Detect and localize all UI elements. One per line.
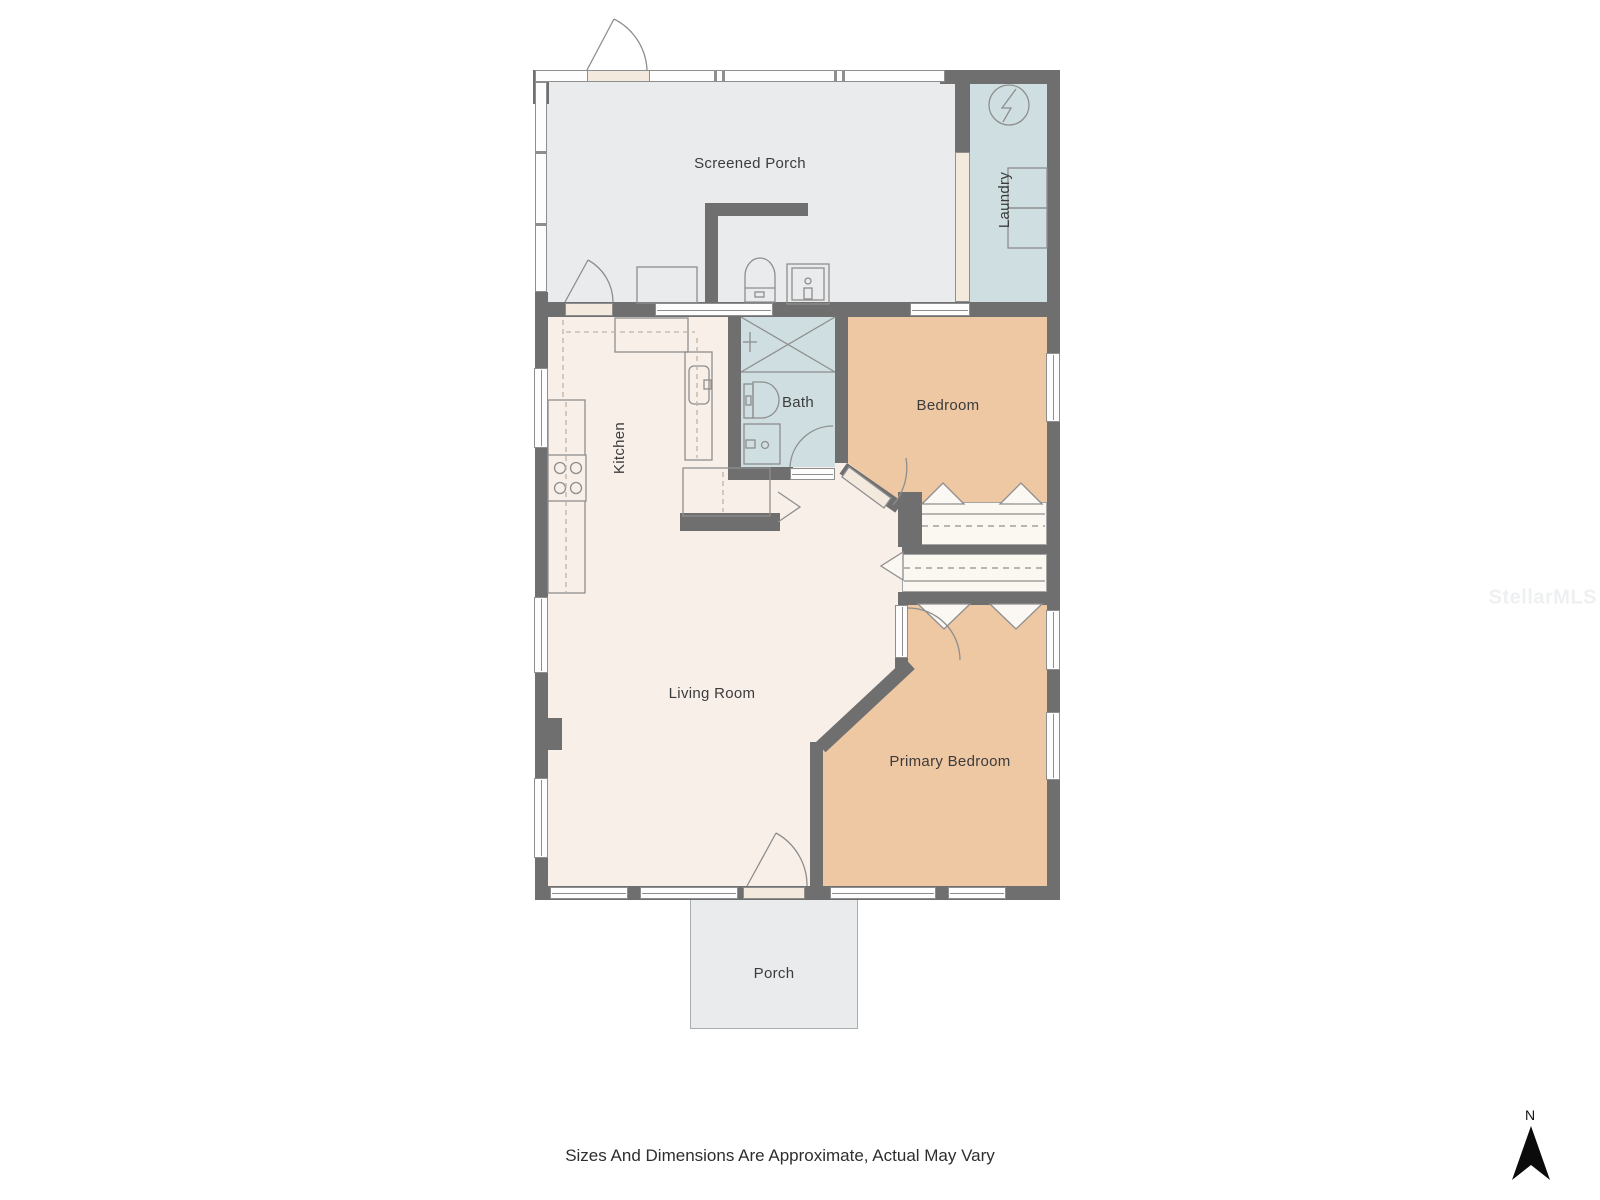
bath-door-gap: [790, 468, 835, 480]
primary-closet: [902, 554, 1047, 592]
primary-window-bottom-2: [948, 887, 1006, 899]
kitchen-window: [534, 368, 548, 448]
primary-window-bottom-1: [830, 887, 936, 899]
living-window-bottom-1: [550, 887, 628, 899]
front-door-panel: [743, 887, 805, 899]
floor-plan-canvas: Screened Porch Laundry Kitchen Bath Bedr…: [0, 0, 1600, 1200]
porch-screen-wall-left: [535, 82, 547, 292]
porch-screen-door-panel: [587, 70, 650, 82]
porch-partition-wall-v: [705, 203, 718, 302]
porch-screen-door-swing: [587, 19, 647, 70]
room-label-primary-bedroom: Primary Bedroom: [889, 753, 1010, 771]
bedroom-porch-window: [910, 303, 970, 316]
primary-window-right-1: [1046, 610, 1060, 670]
disclaimer-text: Sizes And Dimensions Are Approximate, Ac…: [565, 1146, 995, 1166]
bedroom-window-right: [1046, 353, 1060, 422]
room-label-living-room: Living Room: [669, 685, 756, 703]
primary-closet-bottom-wall: [898, 592, 1047, 605]
laundry-left-wall: [955, 70, 970, 152]
laundry-opening: [955, 152, 970, 302]
primary-window-right-2: [1046, 712, 1060, 780]
porch-house-divider-wall: [535, 302, 1060, 317]
kitchen-peninsula-wall: [680, 513, 780, 531]
watermark: StellarMLS: [1489, 587, 1597, 610]
bedroom-closet: [920, 502, 1047, 545]
chimney-bump: [535, 718, 562, 750]
room-label-porch: Porch: [754, 965, 795, 983]
porch-floor: [690, 899, 858, 1029]
bath-porch-window: [655, 303, 773, 316]
bath-bedroom-wall: [835, 317, 848, 463]
closet-divider-wall: [902, 545, 1047, 554]
north-arrow-icon: [1512, 1126, 1550, 1180]
kitchen-porch-door-panel: [565, 303, 613, 316]
room-label-kitchen: Kitchen: [611, 422, 629, 474]
room-label-laundry: Laundry: [996, 172, 1014, 228]
living-window-bottom-2: [640, 887, 738, 899]
room-label-bath: Bath: [782, 394, 814, 412]
room-label-bedroom: Bedroom: [917, 397, 980, 415]
living-window-1: [534, 597, 548, 673]
living-window-2: [534, 778, 548, 858]
primary-door-gap: [895, 605, 908, 658]
compass-label: N: [1525, 1107, 1535, 1123]
bath-wall-left: [728, 317, 741, 480]
primary-wall-left-lower: [810, 742, 823, 886]
bath-floor: [741, 317, 835, 467]
bath-wall-bottom: [728, 467, 793, 480]
room-label-screened-porch: Screened Porch: [694, 155, 806, 173]
porch-partition-wall-h: [705, 203, 808, 216]
screened-porch-floor: [547, 82, 955, 302]
